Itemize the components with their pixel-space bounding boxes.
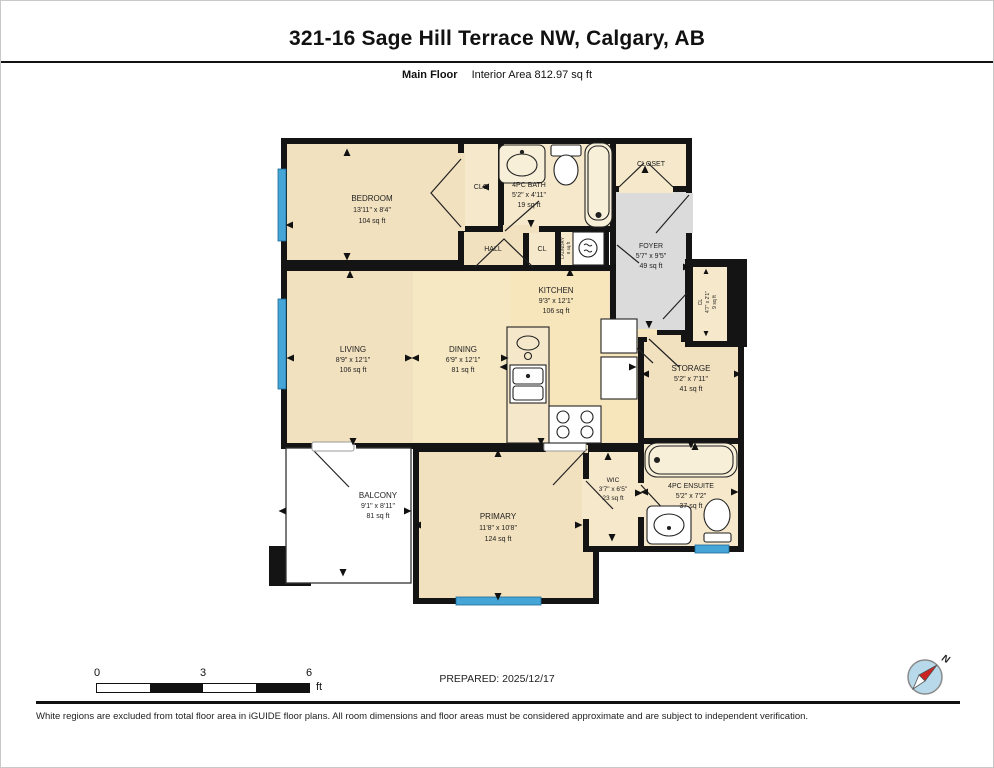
- ensuite-sink-icon: [647, 506, 691, 544]
- svg-text:106 sq ft: 106 sq ft: [340, 367, 367, 374]
- svg-text:9'1" x 8'11": 9'1" x 8'11": [361, 503, 395, 510]
- range-icon: [549, 406, 601, 443]
- scale-segment: [256, 684, 309, 692]
- svg-text:6'9" x 12'1": 6'9" x 12'1": [446, 357, 481, 364]
- scale-segment: [203, 684, 256, 692]
- compass-icon: N: [897, 645, 957, 705]
- footer-divider: [36, 701, 960, 704]
- floor-plan: BEDROOM 13'11" x 8'4" 104 sq ft CLO 4PC …: [1, 1, 994, 768]
- label-clo: CLO: [474, 184, 489, 191]
- svg-text:19 sq ft: 19 sq ft: [518, 202, 541, 209]
- svg-text:4PC ENSUITE: 4PC ENSUITE: [668, 483, 714, 490]
- svg-text:5'2" x 4'11": 5'2" x 4'11": [512, 192, 546, 199]
- svg-text:LIVING: LIVING: [340, 345, 366, 354]
- room-storage: [641, 339, 741, 449]
- svg-text:KITCHEN: KITCHEN: [538, 286, 573, 295]
- disclaimer-text: White regions are excluded from total fl…: [36, 711, 960, 722]
- svg-text:81 sq ft: 81 sq ft: [367, 513, 390, 520]
- scale-segment: [97, 684, 150, 692]
- svg-text:FOYER: FOYER: [639, 243, 663, 250]
- compass-north-label: N: [940, 653, 952, 666]
- svg-text:124 sq ft: 124 sq ft: [485, 536, 512, 543]
- window-bedroom: [278, 169, 286, 241]
- svg-text:104 sq ft: 104 sq ft: [359, 218, 386, 225]
- svg-text:4'7" x 2'1": 4'7" x 2'1": [705, 291, 711, 313]
- room-foyer: [613, 189, 689, 333]
- svg-text:5'7" x 9'5": 5'7" x 9'5": [636, 253, 667, 260]
- prepared-date: PREPARED: 2025/12/17: [1, 673, 993, 685]
- svg-text:9 sq ft: 9 sq ft: [712, 295, 718, 309]
- svg-text:81 sq ft: 81 sq ft: [452, 367, 475, 374]
- svg-text:WIC: WIC: [607, 477, 620, 484]
- svg-text:4PC BATH: 4PC BATH: [512, 182, 546, 189]
- floorplan-page: 321-16 Sage Hill Terrace NW, Calgary, AB…: [0, 0, 994, 768]
- svg-text:5'2" x 7'11": 5'2" x 7'11": [674, 376, 708, 383]
- svg-text:LAUNDRY: LAUNDRY: [560, 237, 565, 258]
- scale-segment: [150, 684, 203, 692]
- svg-text:STORAGE: STORAGE: [672, 364, 711, 373]
- window-living: [278, 299, 286, 389]
- room-balcony: [286, 448, 411, 583]
- svg-text:8 sq ft: 8 sq ft: [566, 241, 571, 254]
- svg-text:BALCONY: BALCONY: [359, 491, 398, 500]
- svg-text:106 sq ft: 106 sq ft: [543, 308, 570, 315]
- svg-text:23 sq ft: 23 sq ft: [602, 495, 624, 502]
- svg-text:13'11" x 8'4": 13'11" x 8'4": [353, 207, 391, 214]
- svg-text:3'7" x 6'5": 3'7" x 6'5": [599, 486, 628, 493]
- svg-text:49 sq ft: 49 sq ft: [640, 263, 663, 270]
- window-ensuite: [695, 545, 729, 553]
- label-foyer: FOYER 5'7" x 9'5" 49 sq ft: [636, 243, 667, 270]
- svg-text:BEDROOM: BEDROOM: [351, 194, 393, 203]
- svg-text:11'8" x 10'8": 11'8" x 10'8": [479, 525, 517, 532]
- svg-text:PRIMARY: PRIMARY: [480, 512, 517, 521]
- svg-text:9'3" x 12'1": 9'3" x 12'1": [539, 298, 574, 305]
- svg-text:41 sq ft: 41 sq ft: [680, 386, 703, 393]
- kitchen-sink-icon: [510, 365, 546, 403]
- label-closet: CLOSET: [637, 161, 666, 168]
- dryer-icon: [573, 232, 604, 265]
- svg-text:DINING: DINING: [449, 345, 477, 354]
- bathtub-icon: [585, 143, 612, 227]
- ensuite-toilet-icon: [704, 499, 731, 542]
- svg-text:CL: CL: [698, 299, 704, 306]
- bath-sink-icon: [499, 145, 545, 183]
- svg-text:37 sq ft: 37 sq ft: [680, 503, 703, 510]
- fridge-icon: [601, 319, 637, 399]
- label-hall: HALL: [484, 246, 502, 253]
- svg-text:8'9" x 12'1": 8'9" x 12'1": [336, 357, 371, 364]
- label-living: LIVING 8'9" x 12'1" 106 sq ft: [336, 345, 371, 374]
- svg-text:5'2" x 7'2": 5'2" x 7'2": [676, 493, 707, 500]
- label-cl: CL: [538, 246, 547, 253]
- label-kitchen: KITCHEN 9'3" x 12'1" 106 sq ft: [538, 286, 573, 315]
- door-leaf-balcony: [312, 442, 354, 451]
